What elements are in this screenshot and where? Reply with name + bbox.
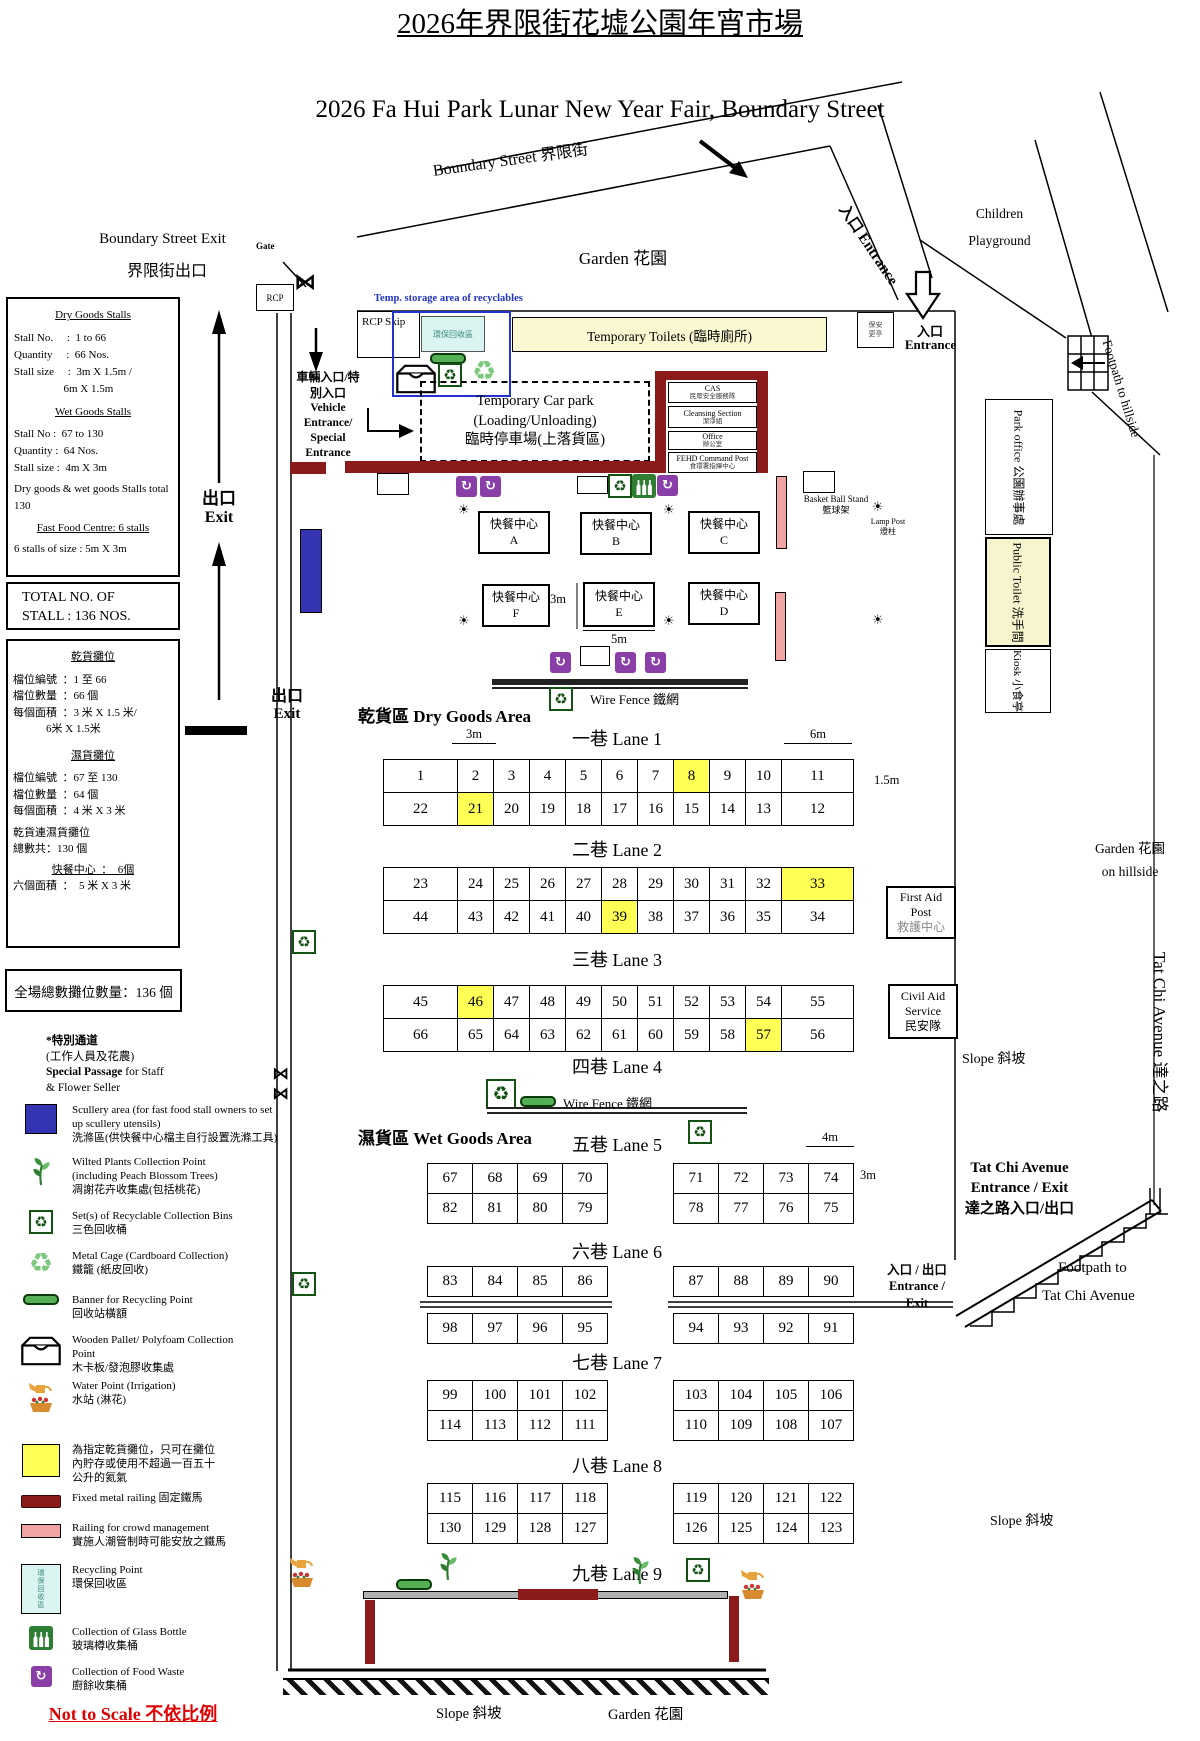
entrance-exit-label: 入口 / 出口 Entrance / Exit <box>876 1262 958 1311</box>
slope-label-bottom: Slope 斜坡 <box>436 1702 502 1723</box>
stall-7: 7 <box>638 760 674 793</box>
recycling-banner-icon <box>520 1096 556 1107</box>
garden-label-bottom: Garden 花園 <box>608 1703 683 1724</box>
special-passage-gate-icon <box>272 1086 289 1103</box>
dim-1-5m: 1.5m <box>874 773 899 788</box>
fast-food-E: 快餐中心E <box>583 582 655 627</box>
stall-95: 95 <box>563 1314 608 1344</box>
food-waste-icon <box>615 652 636 673</box>
stall-62: 62 <box>566 1019 602 1052</box>
stall-96: 96 <box>518 1314 563 1344</box>
stall-90: 90 <box>809 1267 854 1297</box>
stall-109: 109 <box>719 1411 764 1441</box>
lane-7-stalls-right: 103104105106110109108107 <box>673 1380 854 1441</box>
first-aid-post: First AidPost 救護中心 <box>886 886 956 939</box>
stall-46: 46 <box>458 986 494 1019</box>
recycle-bins-icon <box>608 474 632 498</box>
stall-74: 74 <box>809 1164 854 1194</box>
legend-text: Water Point (Irrigation) <box>72 1380 176 1394</box>
food-waste-icon <box>550 652 571 673</box>
stall-42: 42 <box>494 901 530 934</box>
stall-72: 72 <box>719 1164 764 1194</box>
stall-80: 80 <box>518 1194 563 1224</box>
plant-icon <box>27 1156 55 1186</box>
legend-text: 鐵籠 (紙皮回收) <box>72 1264 228 1278</box>
stall-126: 126 <box>674 1514 719 1544</box>
stall-125: 125 <box>719 1514 764 1544</box>
recycle-bins-icon <box>292 1272 316 1296</box>
lamp-post-icon <box>872 613 884 628</box>
garden-top-label: Garden 花園 <box>558 244 688 269</box>
stall-55: 55 <box>782 986 854 1019</box>
children-playground-label: ChildrenPlayground <box>952 200 1047 254</box>
stall-91: 91 <box>809 1314 854 1344</box>
temporary-car-park: Temporary Car park (Loading/Unloading) 臨… <box>420 381 650 462</box>
legend-item-recycling-point: 環保回收區Recycling Point環保回收區 <box>10 1564 290 1614</box>
stall-66: 66 <box>384 1019 458 1052</box>
stall-25: 25 <box>494 868 530 901</box>
lane-7-stalls-left: 99100101102114113112111 <box>427 1380 608 1441</box>
wire-fence-2-line <box>487 1112 747 1114</box>
stall-40: 40 <box>566 901 602 934</box>
lane-1-label: 一巷 Lane 1 <box>467 725 767 751</box>
stall-3: 3 <box>494 760 530 793</box>
site-plan: 2026年界限街花墟公園年宵市場 2026 Fa Hui Park Lunar … <box>0 0 1200 1741</box>
stall-49: 49 <box>566 986 602 1019</box>
legend-item-scullery: Scullery area (for fast food stall owner… <box>10 1104 290 1145</box>
legend-text: Set(s) of Recyclable Collection Bins <box>72 1210 233 1224</box>
pallet-icon <box>19 1334 63 1368</box>
stall-9: 9 <box>710 760 746 793</box>
stall-115: 115 <box>428 1484 473 1514</box>
lane-5-stalls-right: 7172737478777675 <box>673 1163 854 1224</box>
tat-chi-avenue-vertical: Tat Chi Avenue 達之路 <box>1149 952 1174 1112</box>
stall-116: 116 <box>473 1484 518 1514</box>
stall-106: 106 <box>809 1381 854 1411</box>
stall-83: 83 <box>428 1267 473 1297</box>
legend-text: 公升的氦氣 <box>72 1472 215 1486</box>
legend-text: 為指定乾貨攤位，只可在攤位 <box>72 1444 215 1458</box>
legend-text: Collection of Food Waste <box>72 1666 184 1680</box>
title-zh: 2026年界限街花墟公園年宵市場 <box>397 8 803 40</box>
stall-1: 1 <box>384 760 458 793</box>
lane-2-stalls: 2324252627282930313233444342414039383736… <box>383 867 854 934</box>
stall-19: 19 <box>530 793 566 826</box>
stall-130: 130 <box>428 1514 473 1544</box>
recycling-banner-icon <box>396 1579 432 1590</box>
stall-108: 108 <box>764 1411 809 1441</box>
special-passage-gate-icon <box>272 1066 289 1083</box>
lane-3-label: 三巷 Lane 3 <box>467 946 767 972</box>
stall-8: 8 <box>674 760 710 793</box>
banner-icon <box>23 1294 59 1305</box>
stall-41: 41 <box>530 901 566 934</box>
lane-7-label: 七巷 Lane 7 <box>467 1349 767 1375</box>
stall-84: 84 <box>473 1267 518 1297</box>
crowd-railing-2 <box>775 592 786 661</box>
footpath-tatchi-1: Footpath to <box>1058 1260 1127 1277</box>
legend-item-pallet: Wooden Pallet/ Polyfoam CollectionPoint木… <box>10 1334 290 1375</box>
water-point-icon <box>287 1555 317 1589</box>
stall-20: 20 <box>494 793 530 826</box>
fixed-railing-main <box>345 461 658 473</box>
lane-8-stalls-left: 115116117118130129128127 <box>427 1483 608 1544</box>
stall-12: 12 <box>782 793 854 826</box>
legend-item-water: Water Point (Irrigation)水站 (淋花) <box>10 1380 290 1414</box>
legend-text: 三色回收桶 <box>72 1224 233 1238</box>
bottom-railing-left <box>365 1600 375 1664</box>
stall-box-small-3 <box>580 646 610 666</box>
stall-79: 79 <box>563 1194 608 1224</box>
yellow-icon <box>22 1444 60 1477</box>
stall-120: 120 <box>719 1484 764 1514</box>
stall-60: 60 <box>638 1019 674 1052</box>
dim-3m-fastfood: 3m <box>550 592 566 607</box>
lamp-post-icon <box>663 614 675 629</box>
lamp-post-label: Lamp Post燈柱 <box>858 517 918 538</box>
legend-text: 木卡板/發泡膠收集處 <box>72 1362 233 1376</box>
dry-goods-area-label: 乾貨區 Dry Goods Area <box>358 702 531 727</box>
stall-44: 44 <box>384 901 458 934</box>
stall-33: 33 <box>782 868 854 901</box>
fast-food-C: 快餐中心C <box>688 511 760 554</box>
fehd-command-post-box: FEHD Command Post食環署指揮中心 <box>668 452 757 473</box>
stall-65: 65 <box>458 1019 494 1052</box>
stall-99: 99 <box>428 1381 473 1411</box>
lane-3-stalls: 4546474849505152535455666564636261605958… <box>383 985 854 1052</box>
dim-line <box>575 583 579 629</box>
legend-item-railing-pink: Railing for crowd management實施人潮管制時可能安放之… <box>10 1522 290 1550</box>
recycle-bins-icon <box>688 1120 712 1144</box>
stall-100: 100 <box>473 1381 518 1411</box>
stall-18: 18 <box>566 793 602 826</box>
wet-goods-area-label: 濕貨區 Wet Goods Area <box>358 1124 532 1149</box>
cage-icon <box>29 1250 53 1277</box>
lane-5-stalls-left: 6768697082818079 <box>427 1163 608 1224</box>
legend-item-banner: Banner for Recycling Point回收站橫額 <box>10 1294 290 1322</box>
legend-text: 環保回收區 <box>72 1578 143 1592</box>
lamp-post-icon <box>872 500 884 515</box>
legend-text: Point <box>72 1348 233 1362</box>
stall-82: 82 <box>428 1194 473 1224</box>
stall-2: 2 <box>458 760 494 793</box>
vehicle-entrance-label: 車輛入口/特 別入口 Vehicle Entrance/ Special Ent… <box>288 370 368 461</box>
stall-38: 38 <box>638 901 674 934</box>
glass-bottle-icon <box>632 474 656 498</box>
stall-47: 47 <box>494 986 530 1019</box>
legend-text: 洗滌區(供快餐中心檔主自行設置洗滌工具) <box>72 1132 277 1146</box>
cas-railing-left <box>655 371 666 473</box>
legend-item-railing-dark: Fixed metal railing 固定鐵馬 <box>10 1492 290 1508</box>
food-waste-icon <box>480 476 501 497</box>
dim-3m-wet: 3m <box>860 1168 876 1183</box>
stall-77: 77 <box>719 1194 764 1224</box>
lane-9-label: 九巷 Lane 9 <box>467 1560 767 1586</box>
stall-box-small-2 <box>577 476 608 494</box>
dim-5m: 5m <box>583 630 655 647</box>
slope-label-right: Slope 斜坡 <box>962 1048 1025 1068</box>
stall-23: 23 <box>384 868 458 901</box>
basketball-stand-box <box>803 471 835 493</box>
park-office-box: Park office 公園辦事處 <box>985 399 1053 535</box>
stall-107: 107 <box>809 1411 854 1441</box>
stall-114: 114 <box>428 1411 473 1441</box>
legend-item-yellow: 為指定乾貨攤位，只可在攤位內貯存或使用不超過一百五十公升的氦氣 <box>10 1444 290 1485</box>
legend-text: Railing for crowd management <box>72 1522 226 1536</box>
waste-icon <box>31 1666 52 1687</box>
stall-45: 45 <box>384 986 458 1019</box>
recycling-zone-box: 環保回收區 <box>421 316 485 352</box>
stall-43: 43 <box>458 901 494 934</box>
recycle-bins-icon <box>486 1079 516 1109</box>
recycle-bins-icon <box>686 1558 710 1582</box>
food-waste-icon <box>657 475 678 496</box>
lane-1-stalls: 12345678910112221201918171615141312 <box>383 759 854 826</box>
stall-58: 58 <box>710 1019 746 1052</box>
stall-92: 92 <box>764 1314 809 1344</box>
stall-71: 71 <box>674 1164 719 1194</box>
legend-text: Wooden Pallet/ Polyfoam Collection <box>72 1334 233 1348</box>
wire-fence-1-label: Wire Fence 鐵網 <box>590 689 679 708</box>
cas-railing-right <box>757 375 768 473</box>
stall-112: 112 <box>518 1411 563 1441</box>
entrance-label-en: Entrance <box>893 337 968 353</box>
stall-85: 85 <box>518 1267 563 1297</box>
railing-pink-icon <box>21 1524 61 1538</box>
stall-81: 81 <box>473 1194 518 1224</box>
lane-8-stalls-right: 119120121122126125124123 <box>673 1483 854 1544</box>
stall-87: 87 <box>674 1267 719 1297</box>
bottom-fence-railing <box>518 1589 598 1600</box>
stall-52: 52 <box>674 986 710 1019</box>
bottom-railing-right <box>729 1596 739 1662</box>
stall-94: 94 <box>674 1314 719 1344</box>
stall-64: 64 <box>494 1019 530 1052</box>
stall-4: 4 <box>530 760 566 793</box>
glass-icon <box>29 1626 53 1650</box>
recycle-bins-icon <box>549 687 573 711</box>
legend-text: 水站 (淋花) <box>72 1394 176 1408</box>
lane-4-label: 四巷 Lane 4 <box>467 1053 767 1079</box>
stall-97: 97 <box>473 1314 518 1344</box>
stall-50: 50 <box>602 986 638 1019</box>
kiosk-box: Kiosk 小食亭 <box>985 649 1051 713</box>
stall-129: 129 <box>473 1514 518 1544</box>
footpath-tatchi-2: Tat Chi Avenue <box>1042 1288 1135 1305</box>
fast-food-D: 快餐中心D <box>688 582 760 625</box>
stall-24: 24 <box>458 868 494 901</box>
stall-26: 26 <box>530 868 566 901</box>
recycling-point-icon: 環保回收區 <box>21 1564 61 1614</box>
stall-34: 34 <box>782 901 854 934</box>
legend: Scullery area (for fast food stall owner… <box>0 0 300 1741</box>
legend-item-bins: Set(s) of Recyclable Collection Bins三色回收… <box>10 1210 290 1238</box>
stall-93: 93 <box>719 1314 764 1344</box>
legend-text: 實施人潮管制時可能安放之鐵馬 <box>72 1536 226 1550</box>
stall-122: 122 <box>809 1484 854 1514</box>
stall-73: 73 <box>764 1164 809 1194</box>
stall-6: 6 <box>602 760 638 793</box>
legend-item-waste: Collection of Food Waste廚餘收集桶 <box>10 1666 290 1694</box>
stall-box-small-1 <box>377 473 409 495</box>
stall-36: 36 <box>710 901 746 934</box>
lane-8-label: 八巷 Lane 8 <box>467 1452 767 1478</box>
boundary-street-label: Boundary Street 界限街 <box>431 135 589 181</box>
legend-text: Metal Cage (Cardboard Collection) <box>72 1250 228 1264</box>
food-waste-icon <box>456 476 477 497</box>
stall-75: 75 <box>809 1194 854 1224</box>
legend-text: up scullery utensils) <box>72 1118 277 1132</box>
cas-railing-top <box>666 371 768 380</box>
stall-21: 21 <box>458 793 494 826</box>
stall-117: 117 <box>518 1484 563 1514</box>
stall-57: 57 <box>746 1019 782 1052</box>
legend-text: Wilted Plants Collection Point <box>72 1156 218 1170</box>
stall-5: 5 <box>566 760 602 793</box>
legend-text: 回收站橫額 <box>72 1308 193 1322</box>
legend-text: Collection of Glass Bottle <box>72 1626 187 1640</box>
stall-35: 35 <box>746 901 782 934</box>
stall-68: 68 <box>473 1164 518 1194</box>
recycle-bins-icon <box>292 930 316 954</box>
lamp-post-icon <box>458 614 470 629</box>
legend-text: 凋謝花卉收集處(包括桃花) <box>72 1184 218 1198</box>
stall-22: 22 <box>384 793 458 826</box>
stall-104: 104 <box>719 1381 764 1411</box>
stall-59: 59 <box>674 1019 710 1052</box>
stall-124: 124 <box>764 1514 809 1544</box>
legend-text: Recycling Point <box>72 1564 143 1578</box>
temporary-toilets: Temporary Toilets (臨時廁所) <box>512 317 827 352</box>
wilted-plants-icon <box>626 1555 654 1585</box>
cas-box: CAS民眾安全服務隊 <box>668 382 757 403</box>
stall-53: 53 <box>710 986 746 1019</box>
fast-food-F: 快餐中心F <box>482 584 550 627</box>
stall-16: 16 <box>638 793 674 826</box>
stall-39: 39 <box>602 901 638 934</box>
lane-6-stalls-right: 8788899094939291 <box>673 1266 854 1344</box>
temp-storage-title: Temp. storage area of recyclables <box>374 293 523 304</box>
tat-chi-entrance-label: Tat Chi Avenue Entrance / Exit 達之路入口/出口 <box>952 1158 1087 1219</box>
legend-text: Banner for Recycling Point <box>72 1294 193 1308</box>
water-point-icon <box>738 1567 768 1601</box>
stall-61: 61 <box>602 1019 638 1052</box>
garden-hillside-label: Garden 花園on hillside <box>1070 838 1190 884</box>
wire-fence-2-label: Wire Fence 鐵網 <box>563 1093 652 1112</box>
stall-111: 111 <box>563 1411 608 1441</box>
stall-54: 54 <box>746 986 782 1019</box>
stall-28: 28 <box>602 868 638 901</box>
fixed-railing-left <box>290 462 326 474</box>
stall-102: 102 <box>563 1381 608 1411</box>
stall-128: 128 <box>518 1514 563 1544</box>
bins-icon <box>29 1210 53 1234</box>
dim-6m: 6m <box>784 727 852 744</box>
fast-food-B: 快餐中心B <box>580 512 652 555</box>
legend-item-glass: Collection of Glass Bottle玻璃樽收集桶 <box>10 1626 290 1654</box>
wilted-plants-icon <box>434 1551 462 1581</box>
security-booth: 保安更亭 <box>857 312 894 348</box>
stall-119: 119 <box>674 1484 719 1514</box>
office-box: Office辦公室 <box>668 431 757 450</box>
cleansing-section-box: Cleansing Section潔淨組 <box>668 406 757 428</box>
stall-31: 31 <box>710 868 746 901</box>
railing-dark-icon <box>21 1495 61 1508</box>
entrance-road-label: 入口 Entrance <box>835 200 904 289</box>
scullery-icon <box>25 1104 57 1134</box>
stall-11: 11 <box>782 760 854 793</box>
scullery-area <box>300 529 322 613</box>
stall-113: 113 <box>473 1411 518 1441</box>
stall-48: 48 <box>530 986 566 1019</box>
legend-text: Scullery area (for fast food stall owner… <box>72 1104 277 1118</box>
dim-4m: 4m <box>806 1130 854 1147</box>
legend-text: (including Peach Blossom Trees) <box>72 1170 218 1184</box>
stall-69: 69 <box>518 1164 563 1194</box>
stall-51: 51 <box>638 986 674 1019</box>
fast-food-A: 快餐中心A <box>478 511 550 554</box>
stall-127: 127 <box>563 1514 608 1544</box>
stall-98: 98 <box>428 1314 473 1344</box>
stall-56: 56 <box>782 1019 854 1052</box>
stall-123: 123 <box>809 1514 854 1544</box>
stall-14: 14 <box>710 793 746 826</box>
footpath-hillside-label: Footpath to hillside <box>1099 338 1144 439</box>
stall-89: 89 <box>764 1267 809 1297</box>
stall-118: 118 <box>563 1484 608 1514</box>
stall-110: 110 <box>674 1411 719 1441</box>
stall-63: 63 <box>530 1019 566 1052</box>
stall-15: 15 <box>674 793 710 826</box>
stall-37: 37 <box>674 901 710 934</box>
lane-6-label: 六巷 Lane 6 <box>467 1238 767 1264</box>
stall-78: 78 <box>674 1194 719 1224</box>
stall-27: 27 <box>566 868 602 901</box>
stall-101: 101 <box>518 1381 563 1411</box>
stall-105: 105 <box>764 1381 809 1411</box>
lane-6-stalls-left: 8384858698979695 <box>427 1266 608 1344</box>
legend-text: 內貯存或使用不超過一百五十 <box>72 1458 215 1472</box>
food-waste-icon <box>645 652 666 673</box>
not-to-scale: Not to Scale 不依比例 <box>28 1700 238 1726</box>
public-toilet-box: Public Toilet 洗手間 <box>985 537 1051 647</box>
stall-86: 86 <box>563 1267 608 1297</box>
stall-17: 17 <box>602 793 638 826</box>
stall-76: 76 <box>764 1194 809 1224</box>
water-icon <box>26 1380 56 1414</box>
stall-121: 121 <box>764 1484 809 1514</box>
stall-13: 13 <box>746 793 782 826</box>
slope-label-right-2: Slope 斜坡 <box>990 1510 1053 1530</box>
lane-2-label: 二巷 Lane 2 <box>467 836 767 862</box>
stall-103: 103 <box>674 1381 719 1411</box>
legend-text: 玻璃樽收集桶 <box>72 1640 187 1654</box>
stall-32: 32 <box>746 868 782 901</box>
boundary-hatch <box>283 1678 769 1695</box>
stall-10: 10 <box>746 760 782 793</box>
stall-29: 29 <box>638 868 674 901</box>
legend-text: Fixed metal railing 固定鐵馬 <box>72 1492 202 1506</box>
stall-88: 88 <box>719 1267 764 1297</box>
stall-30: 30 <box>674 868 710 901</box>
wire-fence-1 <box>492 679 748 685</box>
basketball-stand-label: Basket Ball Stand籃球架 <box>786 494 886 516</box>
lamp-post-icon <box>458 503 470 518</box>
stall-67: 67 <box>428 1164 473 1194</box>
legend-item-cage: Metal Cage (Cardboard Collection)鐵籠 (紙皮回… <box>10 1250 290 1278</box>
legend-text: 廚餘收集桶 <box>72 1680 184 1694</box>
legend-item-plant: Wilted Plants Collection Point(including… <box>10 1156 290 1197</box>
